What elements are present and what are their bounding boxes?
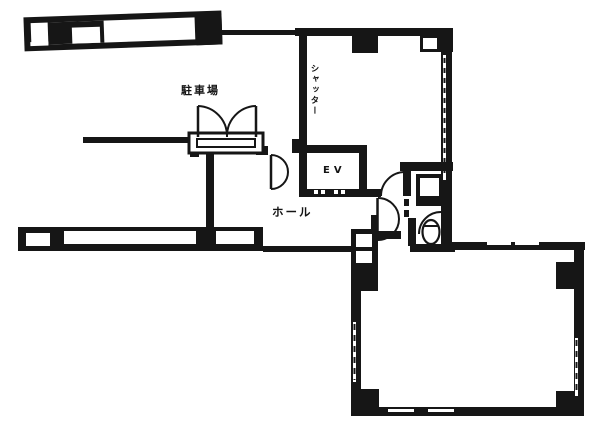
bottom-right-room-walls: [351, 229, 585, 416]
parking-upper-wall: [23, 10, 222, 51]
right-window-dashes: [443, 55, 446, 180]
parking-entrance-double-door-icon: [189, 106, 263, 153]
column: [352, 36, 378, 53]
toilet-icon: [423, 220, 440, 244]
left-window-dashes: [353, 322, 356, 382]
right-window-dashes-lower: [575, 338, 578, 396]
elevator-label: EV: [323, 165, 346, 176]
column: [556, 262, 576, 289]
shutter-label: シャッター: [308, 64, 320, 117]
floor-plan: 駐車場 シャッター EV ホール: [0, 0, 600, 434]
dashed-opening: [404, 199, 409, 206]
parking-lower-wall: [18, 227, 353, 252]
hall-double-door-icon: [271, 155, 288, 189]
hall-label: ホール: [272, 204, 313, 220]
upper-door-swing-icon: [381, 172, 405, 196]
top-connecting-wall: [222, 30, 302, 35]
column: [351, 389, 379, 416]
parking-area-label: 駐車場: [181, 82, 220, 98]
shutter-wall: [299, 33, 307, 152]
